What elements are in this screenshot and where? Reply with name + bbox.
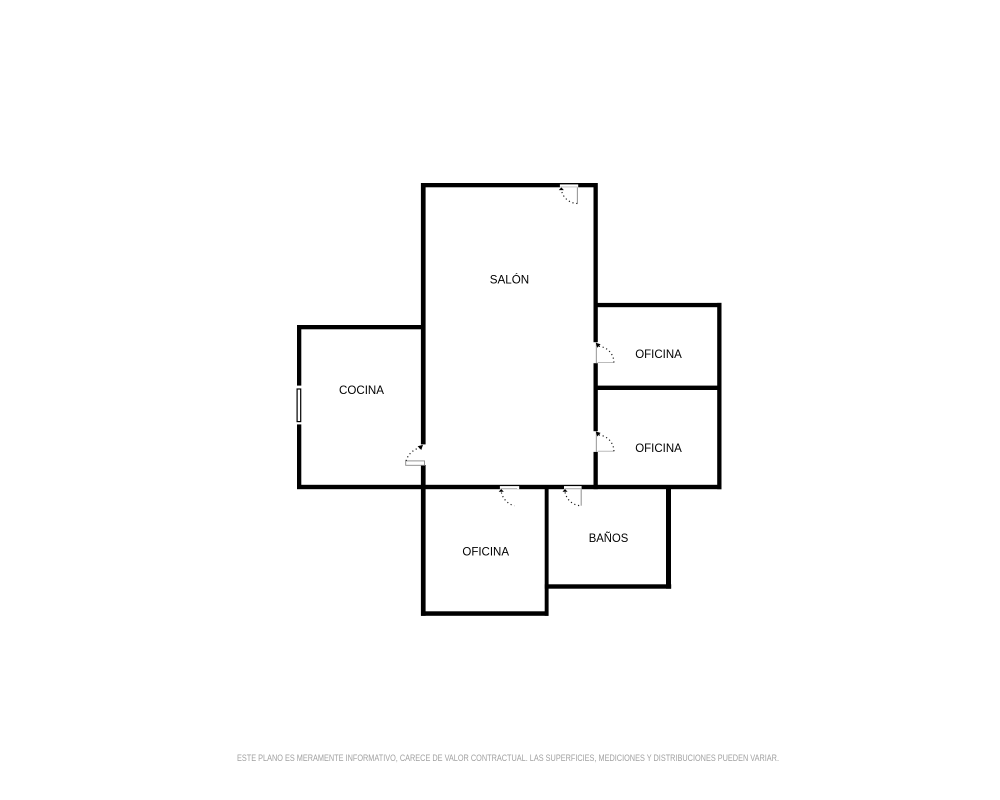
svg-text:OFICINA: OFICINA <box>635 347 682 361</box>
svg-text:OFICINA: OFICINA <box>635 441 682 455</box>
svg-text:OFICINA: OFICINA <box>462 544 509 558</box>
svg-text:SALÓN: SALÓN <box>490 272 529 287</box>
svg-text:ESTE PLANO ES MERAMENTE INFORM: ESTE PLANO ES MERAMENTE INFORMATIVO, CAR… <box>237 753 779 763</box>
svg-text:COCINA: COCINA <box>339 383 384 397</box>
svg-text:BAÑOS: BAÑOS <box>589 531 629 545</box>
